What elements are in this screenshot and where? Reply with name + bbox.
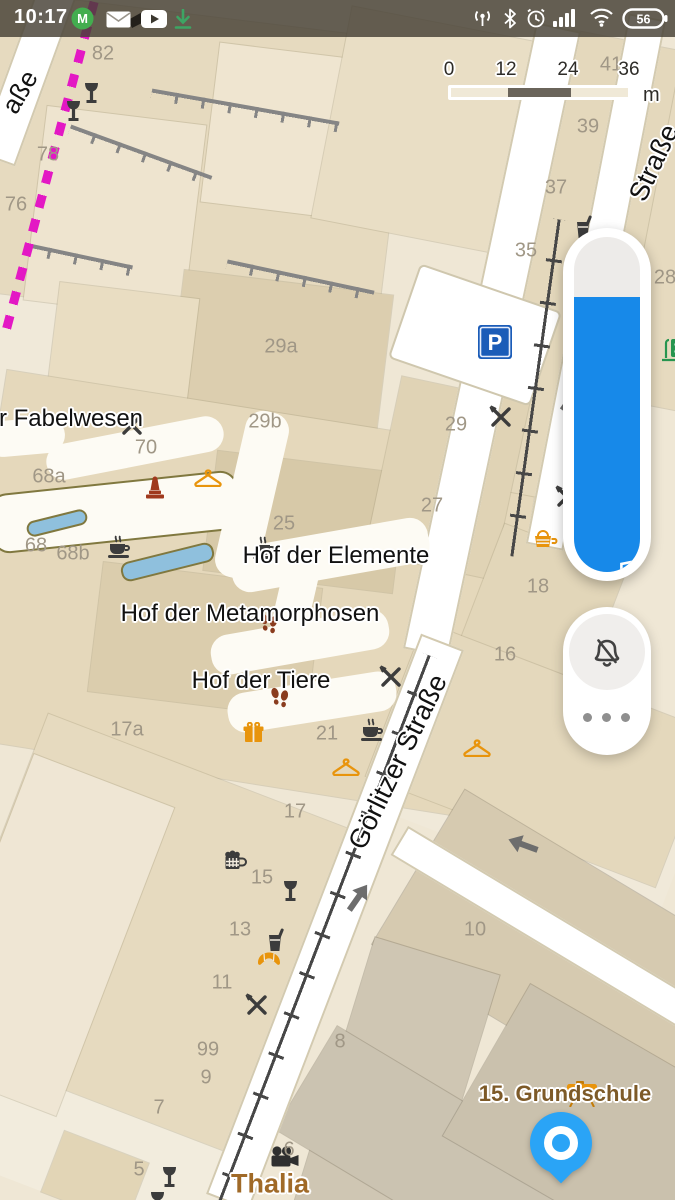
scale-bar-ticks: 0122436 xyxy=(0,0,675,1200)
scale-bar-unit: m xyxy=(643,84,660,107)
clock: 10:17 xyxy=(14,6,68,29)
volume-panel xyxy=(563,228,651,581)
volume-fill[interactable] xyxy=(574,297,640,572)
pin-center-dot xyxy=(552,1134,570,1152)
scale-tick: 0 xyxy=(444,59,455,81)
svg-text:56: 56 xyxy=(637,13,651,27)
dot xyxy=(602,713,611,722)
status-bar: 10:17 M 56 xyxy=(0,0,675,37)
mute-button[interactable] xyxy=(569,614,645,690)
scale-tick: 36 xyxy=(618,59,639,81)
volume-slider[interactable] xyxy=(574,237,640,572)
more-options-button[interactable] xyxy=(583,713,631,723)
scale-tick: 24 xyxy=(557,59,578,81)
scale-tick: 12 xyxy=(495,59,516,81)
svg-text:M: M xyxy=(77,11,88,26)
ringer-panel xyxy=(563,607,651,755)
scale-bar-segment xyxy=(508,88,571,97)
dot xyxy=(583,713,592,722)
scale-bar xyxy=(448,85,631,100)
bell-slash-icon xyxy=(587,632,627,672)
map-app-screen[interactable]: PAb827876413937352829a29b2927257068a6868… xyxy=(0,0,675,1200)
location-pin[interactable] xyxy=(527,1112,595,1200)
dot xyxy=(621,713,630,722)
